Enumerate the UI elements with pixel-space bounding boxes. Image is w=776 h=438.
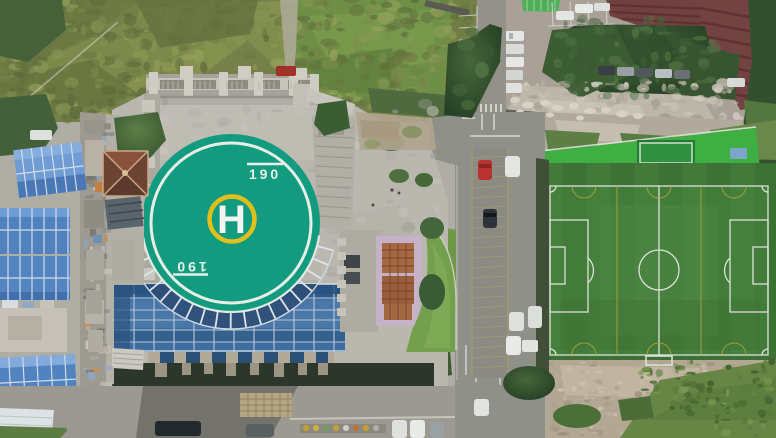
svg-text:190: 190 xyxy=(249,166,281,182)
svg-text:H: H xyxy=(217,198,246,242)
svg-text:190: 190 xyxy=(174,259,206,275)
